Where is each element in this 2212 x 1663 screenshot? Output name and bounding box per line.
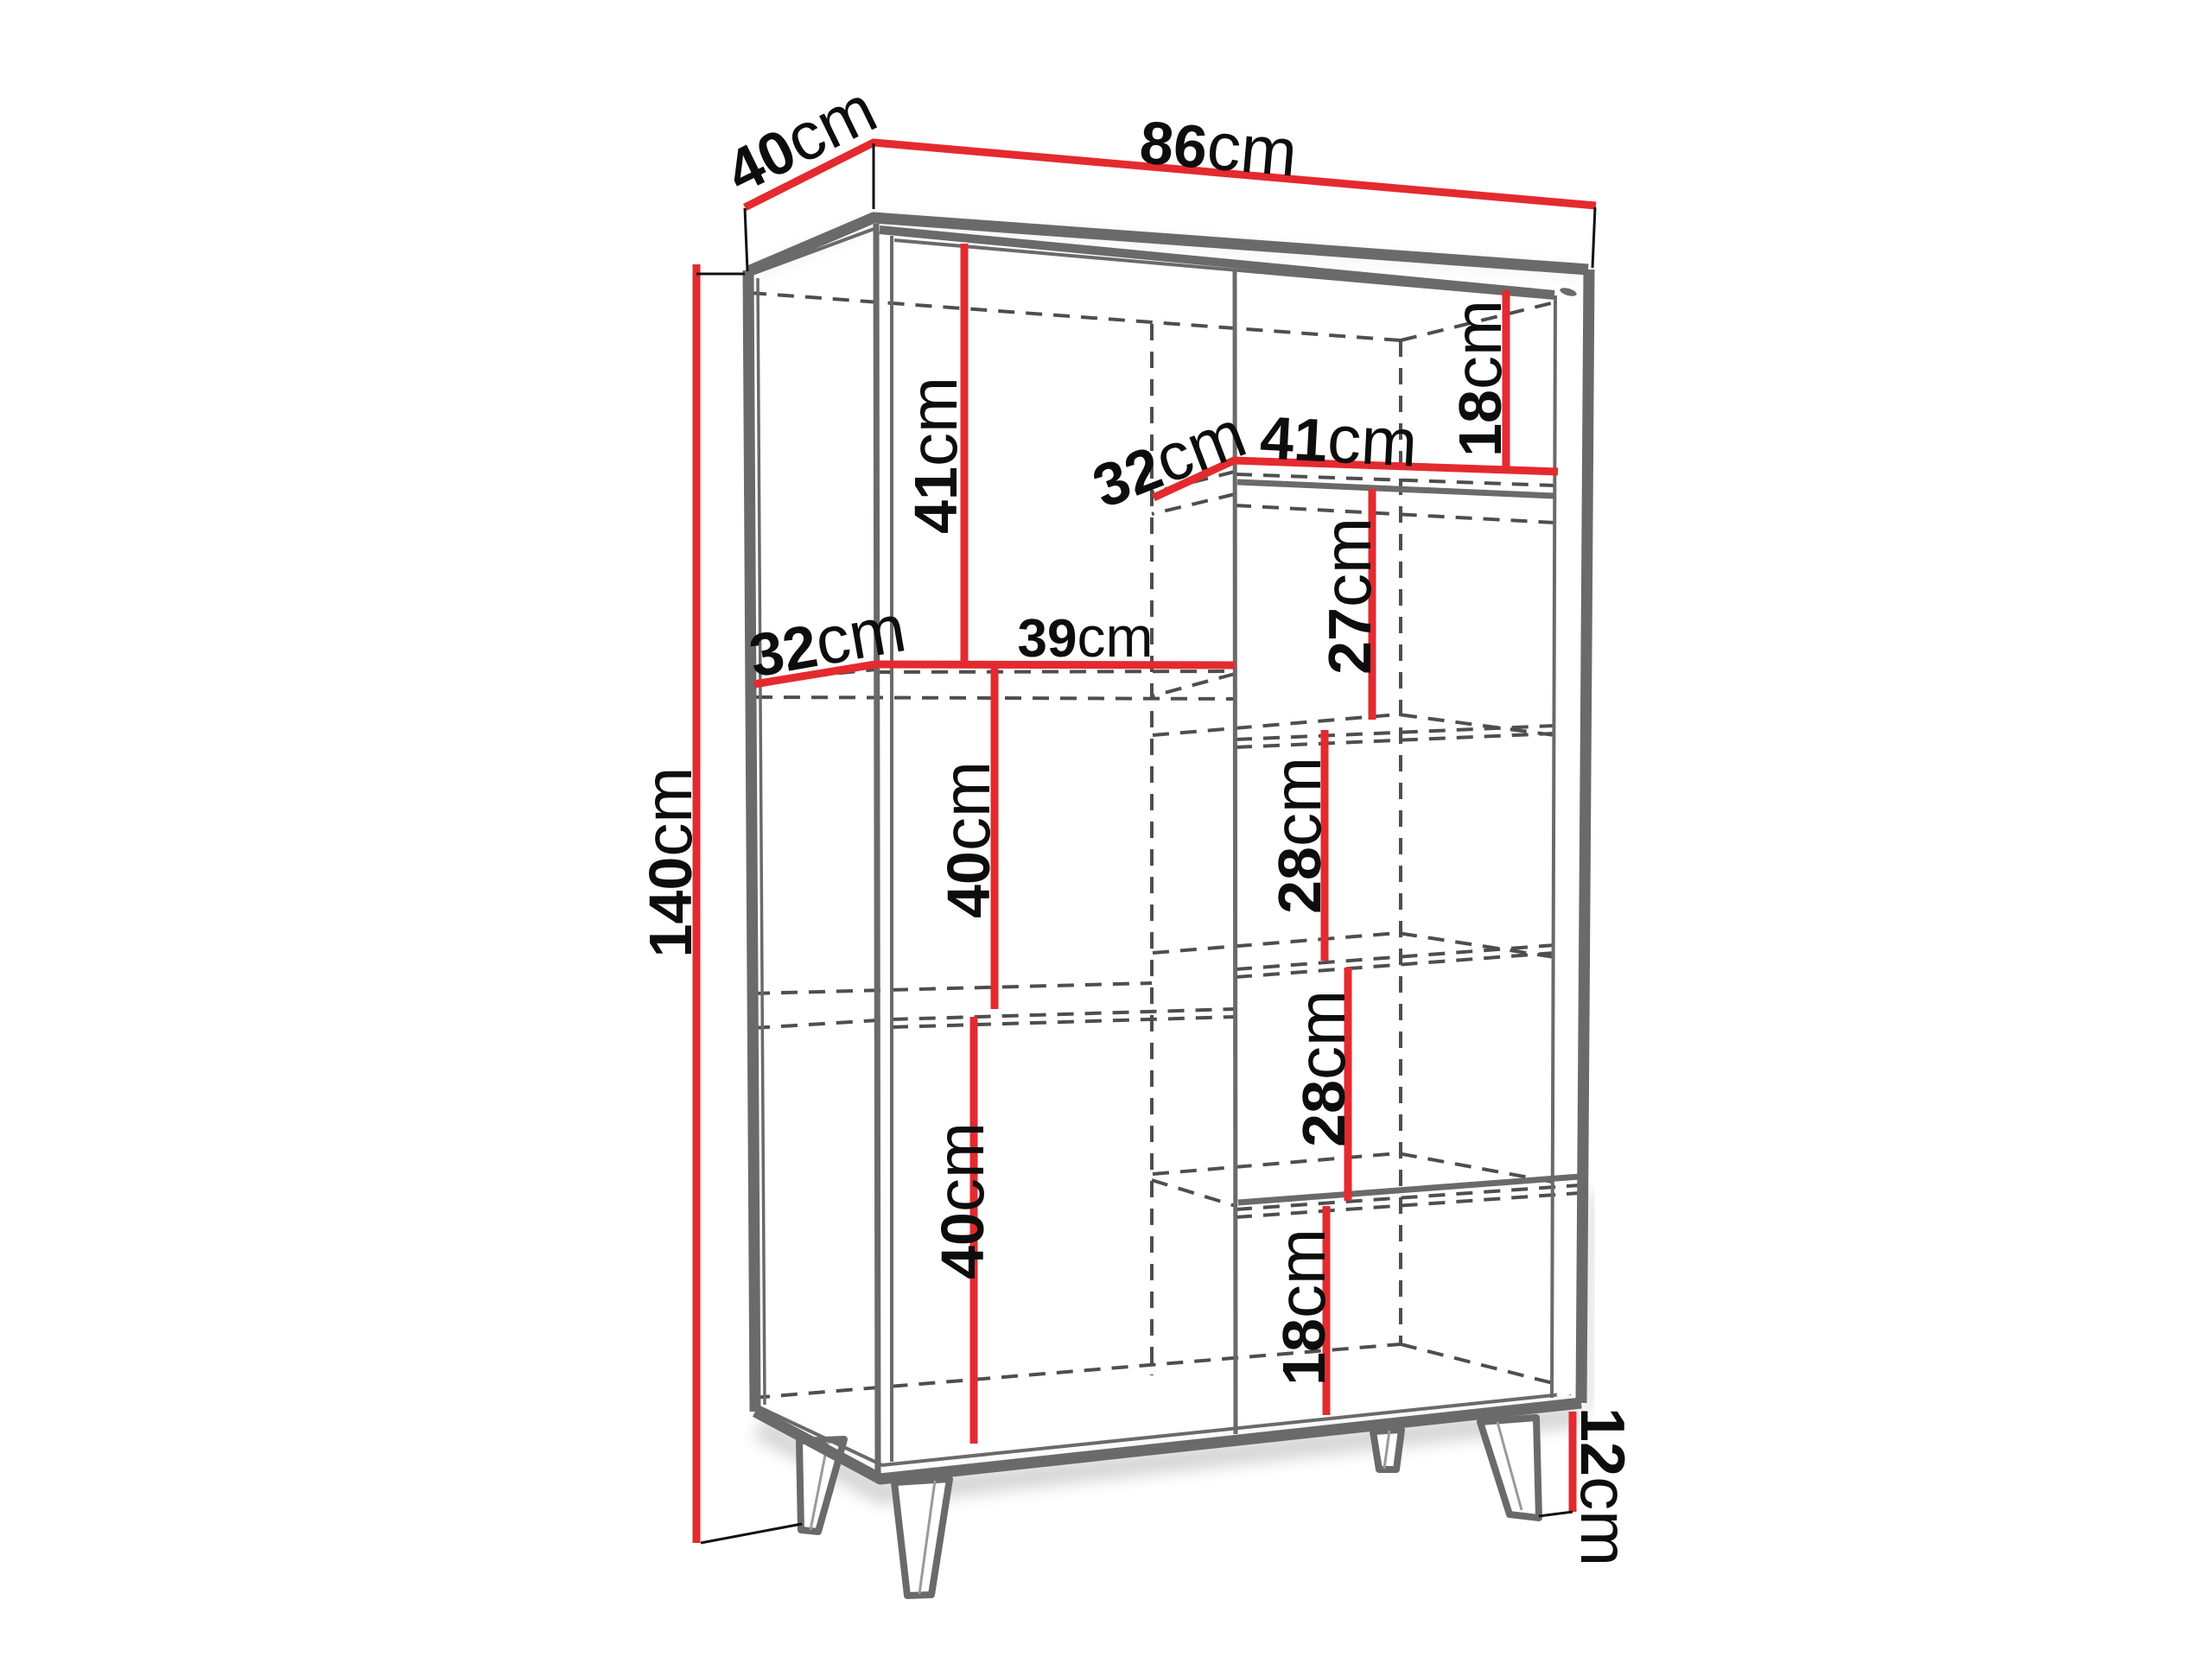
svg-text:12cm: 12cm — [1567, 1407, 1643, 1566]
svg-text:27cm: 27cm — [1309, 517, 1385, 675]
svg-text:40cm: 40cm — [928, 761, 1004, 918]
svg-text:28cm: 28cm — [1283, 990, 1359, 1147]
svg-text:18cm: 18cm — [1440, 300, 1516, 457]
svg-text:18cm: 18cm — [1263, 1228, 1339, 1386]
svg-text:86cm: 86cm — [1137, 101, 1300, 191]
svg-text:39cm: 39cm — [1018, 605, 1154, 669]
svg-text:28cm: 28cm — [1259, 757, 1335, 914]
svg-text:41cm: 41cm — [895, 377, 971, 534]
svg-text:41cm: 41cm — [1258, 397, 1419, 480]
svg-text:140cm: 140cm — [630, 767, 706, 958]
svg-text:40cm: 40cm — [922, 1122, 998, 1279]
